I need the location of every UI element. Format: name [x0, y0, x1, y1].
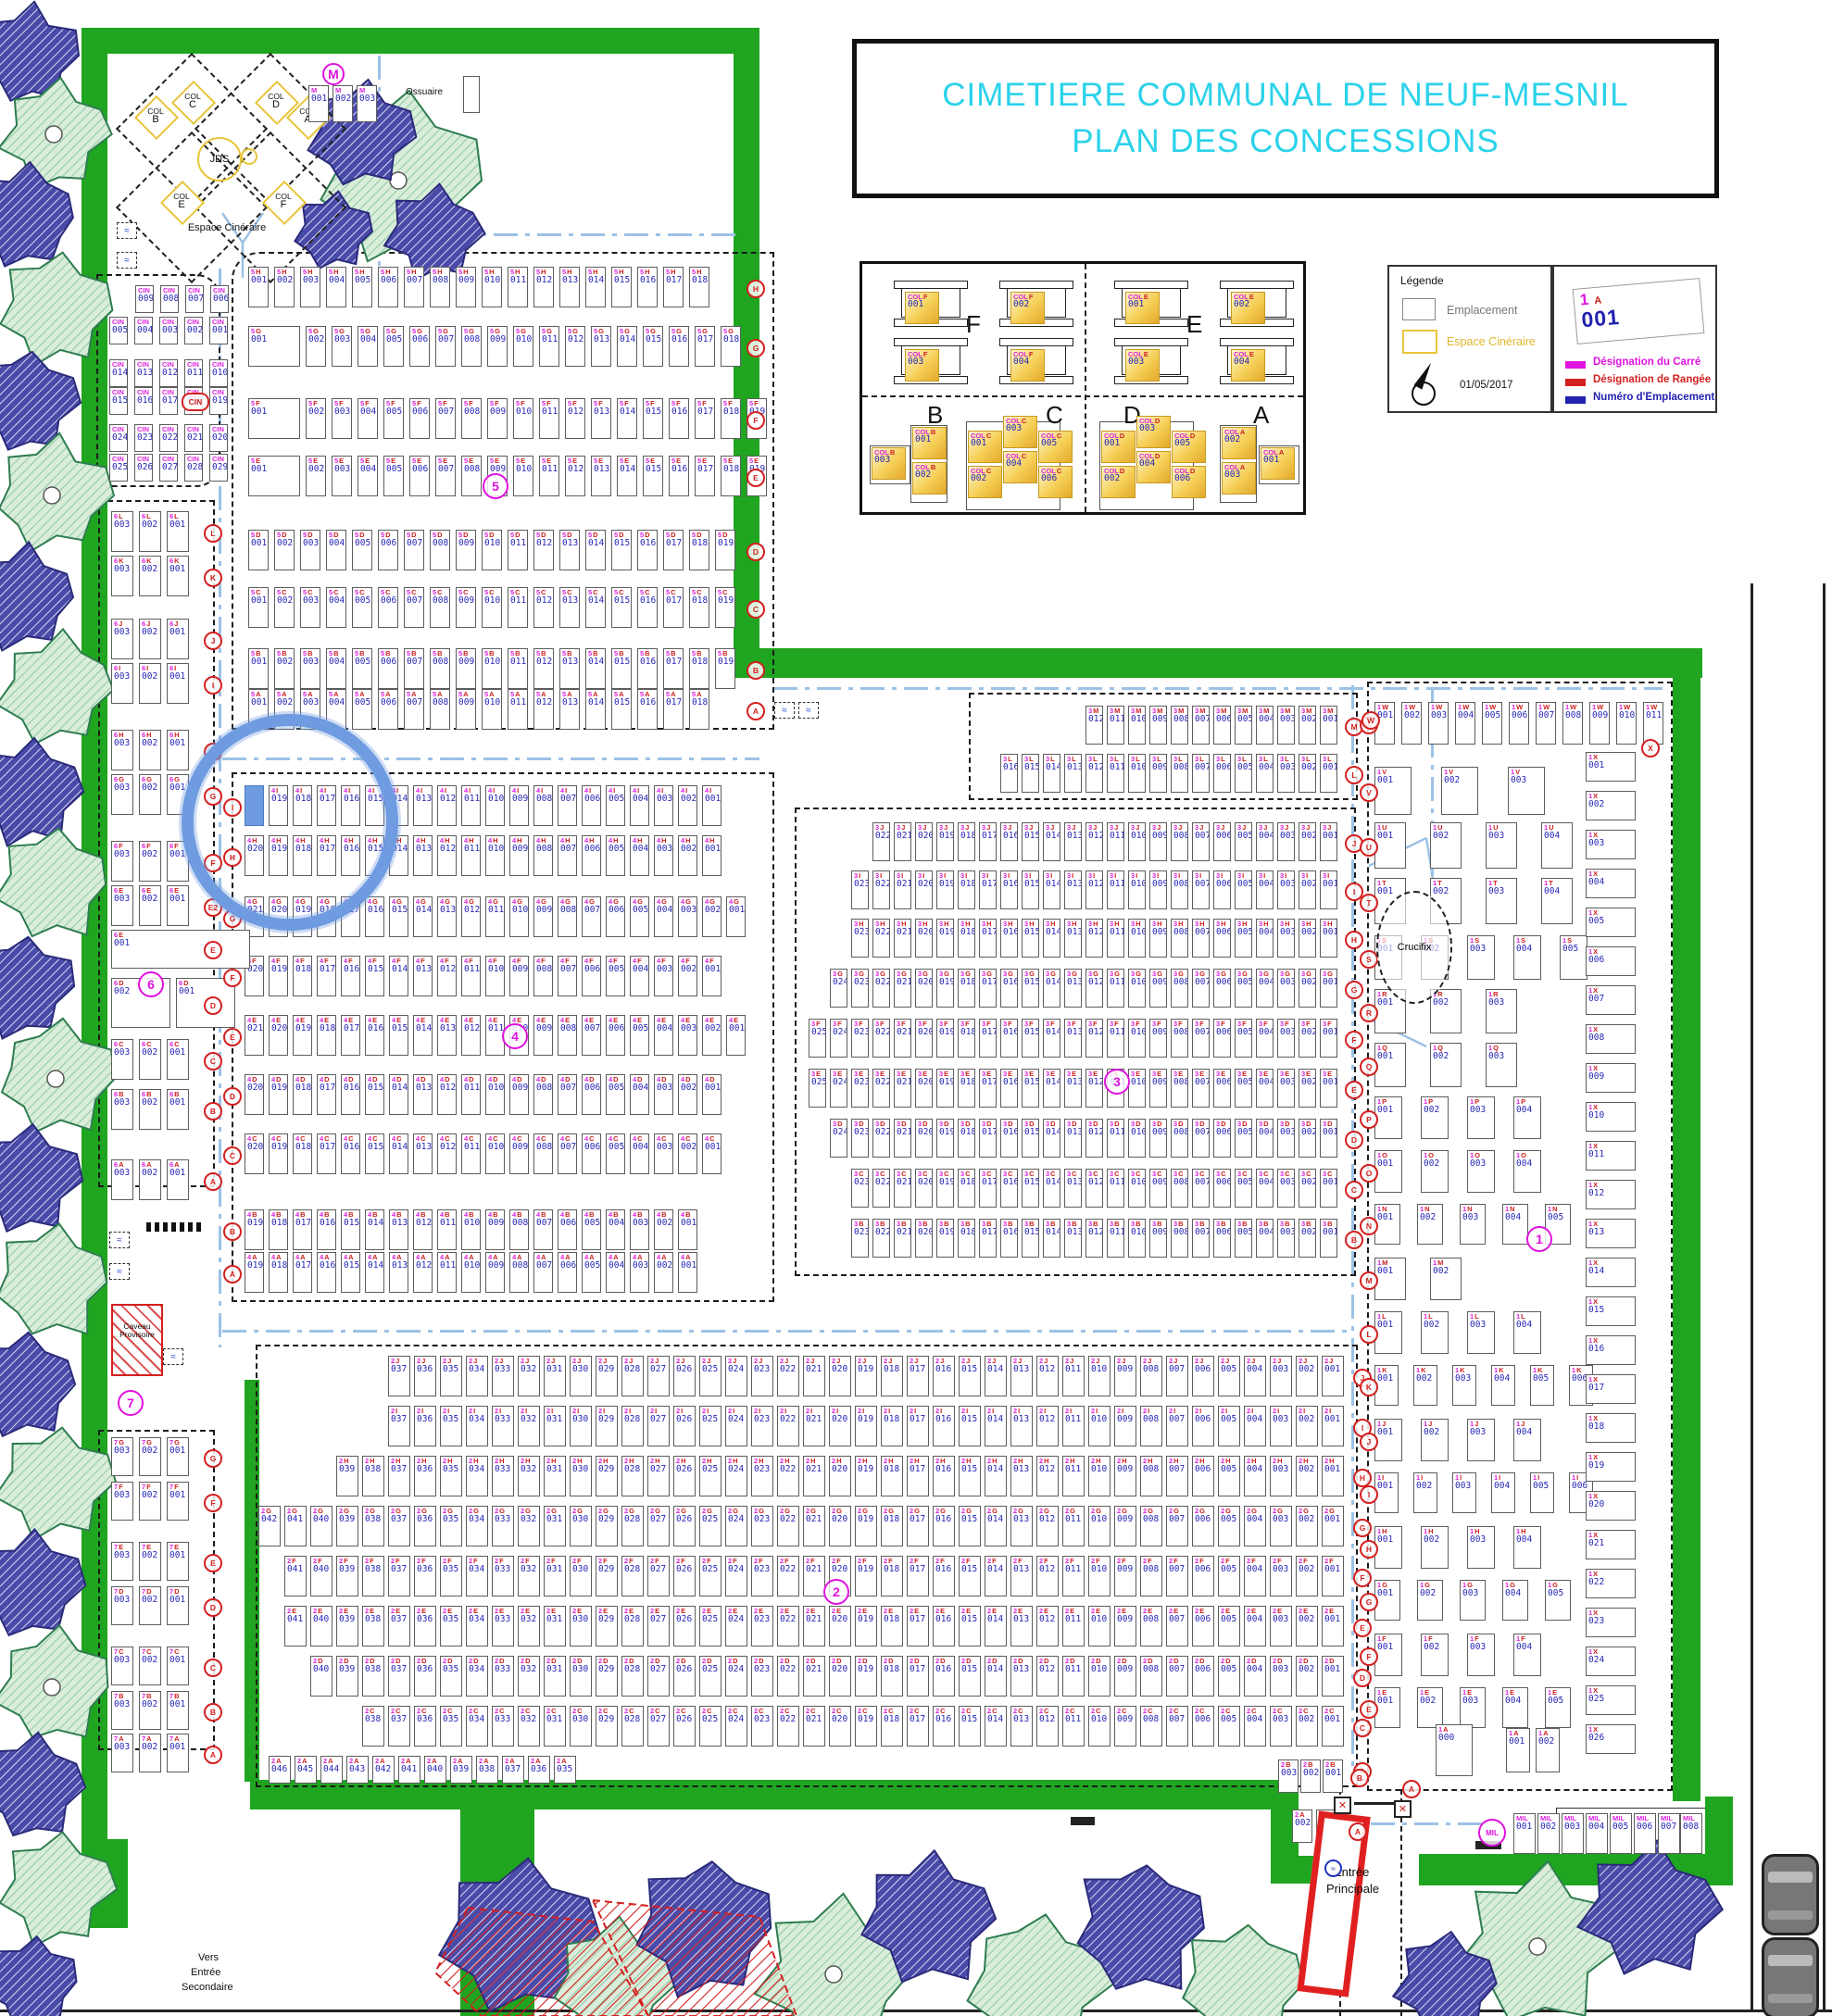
plot[interactable]: 4A004 [606, 1252, 625, 1293]
plot[interactable]: 2J035 [440, 1356, 462, 1396]
plot[interactable]: 3F020 [915, 1019, 933, 1058]
plot[interactable]: 1X025 [1586, 1685, 1636, 1715]
plot[interactable]: 2J030 [570, 1356, 592, 1396]
plot[interactable]: 2D040 [310, 1656, 333, 1697]
plot[interactable]: 5C003 [300, 587, 320, 628]
plot[interactable]: 3F007 [1192, 1019, 1210, 1058]
plot[interactable]: 2G036 [414, 1506, 436, 1546]
plot[interactable]: 3C009 [1149, 1169, 1167, 1208]
plot[interactable]: 3G006 [1213, 969, 1231, 1008]
plot[interactable]: 2J026 [673, 1356, 696, 1396]
plot[interactable]: 1V003 [1508, 767, 1545, 815]
plot[interactable]: 5B010 [482, 648, 502, 689]
plot[interactable]: 1X005 [1586, 908, 1636, 937]
plot[interactable]: 2G026 [673, 1506, 696, 1546]
plot[interactable]: 5C012 [533, 587, 554, 628]
plot[interactable]: 4D017 [317, 1074, 336, 1115]
plot[interactable]: 2H017 [907, 1456, 929, 1496]
plot[interactable]: 3F014 [1043, 1019, 1060, 1058]
plot[interactable]: 2J024 [725, 1356, 747, 1396]
plot[interactable]: 2I030 [570, 1406, 592, 1446]
plot[interactable]: 4D010 [485, 1074, 505, 1115]
plot[interactable]: 3D006 [1213, 1119, 1231, 1158]
plot[interactable]: 4D012 [437, 1074, 457, 1115]
plot[interactable]: 3C004 [1256, 1169, 1274, 1208]
plot[interactable]: 3L001 [1320, 754, 1337, 793]
plot[interactable]: 3E007 [1192, 1069, 1210, 1108]
plot[interactable]: 3M010 [1128, 706, 1146, 745]
plot[interactable]: 6F003 [111, 841, 133, 882]
plot[interactable]: 1X008 [1586, 1024, 1636, 1054]
plot[interactable]: 5F004 [358, 398, 378, 439]
plot[interactable]: 2D012 [1036, 1656, 1059, 1697]
plot[interactable]: 5F011 [539, 398, 559, 439]
plot[interactable]: 6E003 [111, 885, 133, 926]
plot[interactable]: 5D010 [482, 530, 502, 570]
plot[interactable]: 4F001 [702, 956, 722, 996]
plot[interactable]: 3J017 [979, 822, 997, 861]
plot[interactable]: 2D004 [1244, 1656, 1266, 1697]
plot[interactable]: 2H003 [1270, 1456, 1292, 1496]
plot[interactable]: 2J008 [1140, 1356, 1162, 1396]
plot[interactable]: 5F008 [461, 398, 482, 439]
plot[interactable]: 2E013 [1010, 1606, 1033, 1647]
plot[interactable]: 2J015 [959, 1356, 981, 1396]
plot[interactable]: 2D038 [362, 1656, 384, 1697]
plot[interactable]: 4A016 [317, 1252, 336, 1293]
plot[interactable]: 5E008 [461, 456, 482, 496]
plot[interactable]: 2C008 [1140, 1706, 1162, 1747]
plot[interactable]: 3H005 [1235, 919, 1252, 958]
plot[interactable]: 2J013 [1010, 1356, 1033, 1396]
plot[interactable]: 2D015 [959, 1656, 981, 1697]
plot[interactable]: 4C019 [269, 1133, 288, 1174]
plot[interactable]: 2F005 [1218, 1556, 1240, 1597]
plot[interactable]: 5D014 [585, 530, 606, 570]
plot[interactable]: 3I022 [872, 870, 890, 909]
plot[interactable]: 7D003 [111, 1586, 133, 1625]
plot[interactable]: 5C007 [404, 587, 424, 628]
plot[interactable]: 5F013 [591, 398, 611, 439]
plot[interactable]: 3M006 [1213, 706, 1231, 745]
plot[interactable]: 3F019 [936, 1019, 954, 1058]
plot[interactable]: 1X001 [1586, 752, 1636, 782]
plot[interactable]: 5A015 [611, 689, 632, 730]
plot[interactable]: 4G008 [558, 896, 577, 937]
plot[interactable]: 4A013 [389, 1252, 408, 1293]
plot[interactable]: 2H022 [777, 1456, 799, 1496]
plot[interactable]: 4E003 [678, 1015, 697, 1056]
plot[interactable]: 5E014 [617, 456, 637, 496]
plot[interactable]: 4F011 [461, 956, 481, 996]
plot[interactable]: 2C028 [621, 1706, 644, 1747]
plot[interactable]: 2H030 [570, 1456, 592, 1496]
plot[interactable]: CIN025 [109, 454, 128, 482]
plot[interactable]: 4I007 [558, 785, 577, 826]
plot[interactable]: 2G037 [388, 1506, 410, 1546]
plot[interactable]: 3J004 [1256, 822, 1274, 861]
plot[interactable]: 1F001 [1374, 1634, 1402, 1676]
plot[interactable]: 3B017 [979, 1219, 997, 1258]
plot[interactable]: 4E005 [630, 1015, 649, 1056]
plot[interactable]: 6G002 [139, 774, 161, 815]
plot[interactable]: 2C019 [855, 1706, 877, 1747]
plot[interactable]: 4G016 [365, 896, 384, 937]
plot[interactable]: 4F017 [317, 956, 336, 996]
plot[interactable]: 2F018 [881, 1556, 903, 1597]
plot[interactable]: 2D001 [1322, 1656, 1344, 1697]
plot[interactable]: 3F009 [1149, 1019, 1167, 1058]
plot[interactable]: 5G005 [383, 326, 404, 367]
plot[interactable]: 5H005 [352, 267, 372, 307]
plot[interactable]: CIN001 [209, 317, 228, 344]
plot[interactable]: 3F005 [1235, 1019, 1252, 1058]
plot[interactable]: 2C003 [1270, 1706, 1292, 1747]
plot[interactable]: 1E002 [1417, 1687, 1443, 1728]
plot[interactable]: 1F003 [1467, 1634, 1495, 1676]
plot[interactable]: 2H007 [1166, 1456, 1188, 1496]
plot[interactable]: 3C005 [1235, 1169, 1252, 1208]
plot[interactable]: 3H002 [1299, 919, 1316, 958]
plot[interactable]: 4H001 [702, 835, 722, 876]
plot[interactable]: 2F035 [440, 1556, 462, 1597]
plot[interactable]: 1W002 [1401, 702, 1422, 745]
plot[interactable]: 2H008 [1140, 1456, 1162, 1496]
plot[interactable]: 4E001 [726, 1015, 746, 1056]
plot[interactable]: 3F021 [894, 1019, 911, 1058]
plot[interactable]: 4D014 [389, 1074, 408, 1115]
plot[interactable]: 3H012 [1085, 919, 1103, 958]
plot[interactable]: 2G007 [1166, 1506, 1188, 1546]
plot[interactable]: 4G003 [678, 896, 697, 937]
plot[interactable]: 5G016 [669, 326, 689, 367]
plot[interactable]: 4G015 [389, 896, 408, 937]
plot[interactable]: 2H016 [933, 1456, 955, 1496]
plot[interactable]: 2A037 [502, 1756, 524, 1784]
plot[interactable]: 2H039 [336, 1456, 358, 1496]
plot[interactable]: 2J004 [1244, 1356, 1266, 1396]
plot[interactable]: MIL004 [1586, 1813, 1608, 1854]
plot[interactable]: 2A046 [269, 1756, 291, 1784]
plot[interactable]: 2D021 [803, 1656, 825, 1697]
plot[interactable]: MIL008 [1680, 1813, 1702, 1854]
plot[interactable]: 4D001 [702, 1074, 722, 1115]
plot[interactable]: 2E018 [881, 1606, 903, 1647]
plot[interactable]: 3C003 [1277, 1169, 1295, 1208]
plot[interactable]: 2G018 [881, 1506, 903, 1546]
plot[interactable]: 1X002 [1586, 791, 1636, 820]
plot[interactable]: 2C005 [1218, 1706, 1240, 1747]
plot[interactable]: 2H005 [1218, 1456, 1240, 1496]
plot[interactable]: 2G016 [933, 1506, 955, 1546]
plot[interactable]: 5B018 [689, 648, 709, 689]
plot[interactable]: 2J011 [1062, 1356, 1085, 1396]
plot[interactable]: 4F007 [558, 956, 577, 996]
plot[interactable]: 2F031 [544, 1556, 566, 1597]
plot[interactable]: 4D003 [654, 1074, 673, 1115]
plot[interactable]: 2H032 [518, 1456, 540, 1496]
plot[interactable]: 5H009 [456, 267, 476, 307]
plot[interactable]: 3H013 [1064, 919, 1082, 958]
plot[interactable]: 4D007 [558, 1074, 577, 1115]
plot[interactable]: 3J007 [1192, 822, 1210, 861]
plot[interactable]: 3B014 [1043, 1219, 1060, 1258]
plot[interactable]: 4I008 [533, 785, 553, 826]
plot[interactable]: 4C010 [485, 1133, 505, 1174]
plot[interactable]: 1X013 [1586, 1219, 1636, 1248]
plot[interactable]: 3G019 [936, 969, 954, 1008]
plot[interactable]: 1X024 [1586, 1647, 1636, 1676]
plot[interactable]: 4I005 [606, 785, 625, 826]
plot[interactable]: 2H020 [829, 1456, 851, 1496]
plot[interactable]: 3J020 [915, 822, 933, 861]
plot[interactable]: 2I027 [647, 1406, 670, 1446]
plot[interactable]: 2A042 [372, 1756, 395, 1784]
plot[interactable]: 3C022 [872, 1169, 890, 1208]
plot[interactable]: 2J019 [855, 1356, 877, 1396]
plot[interactable]: 4F006 [582, 956, 601, 996]
plot[interactable]: 4G002 [702, 896, 722, 937]
plot[interactable]: 1X014 [1586, 1258, 1636, 1287]
plot[interactable]: 5F003 [332, 398, 352, 439]
plot[interactable]: 2J037 [388, 1356, 410, 1396]
plot[interactable]: 4E009 [533, 1015, 553, 1056]
plot[interactable]: 4H008 [533, 835, 553, 876]
plot[interactable]: 2H037 [388, 1456, 410, 1496]
plot[interactable]: 2I016 [933, 1406, 955, 1446]
plot[interactable]: 2H006 [1192, 1456, 1214, 1496]
plot[interactable]: 3J008 [1171, 822, 1188, 861]
plot[interactable]: 4G001 [726, 896, 746, 937]
plot[interactable]: 2G001 [1322, 1506, 1344, 1546]
plot[interactable]: 1X009 [1586, 1063, 1636, 1093]
plot[interactable]: 5H007 [404, 267, 424, 307]
plot[interactable]: 6C002 [139, 1039, 161, 1080]
plot[interactable]: 3J003 [1277, 822, 1295, 861]
plot[interactable]: 5B015 [611, 648, 632, 689]
plot[interactable]: 5G017 [695, 326, 715, 367]
plot[interactable]: 2F032 [518, 1556, 540, 1597]
plot[interactable]: 5C011 [508, 587, 528, 628]
plot[interactable]: 2D037 [388, 1656, 410, 1697]
plot[interactable]: 2C018 [881, 1706, 903, 1747]
plot[interactable]: 2D011 [1062, 1656, 1085, 1697]
plot[interactable]: 5C014 [585, 587, 606, 628]
plot[interactable]: 3I015 [1022, 870, 1039, 909]
plot[interactable]: 3G021 [894, 969, 911, 1008]
plot[interactable]: 1O004 [1513, 1150, 1541, 1193]
plot[interactable]: 5G018 [721, 326, 741, 367]
plot[interactable]: 7C003 [111, 1647, 133, 1685]
plot[interactable]: 3M005 [1235, 706, 1252, 745]
plot[interactable]: 6J003 [111, 619, 133, 659]
plot[interactable]: 1J003 [1467, 1419, 1495, 1461]
plot[interactable]: 1X026 [1586, 1724, 1636, 1754]
plot[interactable]: 5G011 [539, 326, 559, 367]
plot[interactable]: 3F003 [1277, 1019, 1295, 1058]
plot[interactable]: 4E017 [341, 1015, 360, 1056]
plot[interactable]: 1U003 [1486, 822, 1517, 869]
plot[interactable]: 2I008 [1140, 1406, 1162, 1446]
plot[interactable]: 5F007 [435, 398, 456, 439]
plot[interactable]: 1W004 [1455, 702, 1475, 745]
plot[interactable]: 3J002 [1299, 822, 1316, 861]
plot[interactable]: 1X016 [1586, 1335, 1636, 1365]
plot[interactable]: 6I001 [167, 663, 189, 704]
plot[interactable]: 2A040 [424, 1756, 446, 1784]
plot[interactable]: 1K005 [1530, 1365, 1554, 1406]
plot[interactable]: 4B018 [269, 1209, 288, 1250]
plot[interactable]: 1G002 [1417, 1580, 1443, 1621]
plot[interactable]: 3M008 [1171, 706, 1188, 745]
plot[interactable]: 5D015 [611, 530, 632, 570]
plot[interactable]: 2H028 [621, 1456, 644, 1496]
plot[interactable]: CIN011 [184, 359, 203, 387]
plot[interactable]: 2E030 [570, 1606, 592, 1647]
plot[interactable]: CIN015 [109, 387, 128, 415]
plot[interactable]: 2J003 [1270, 1356, 1292, 1396]
plot[interactable]: CIN006 [210, 285, 229, 313]
plot[interactable]: 5D009 [456, 530, 476, 570]
plot[interactable]: 2I006 [1192, 1406, 1214, 1446]
plot[interactable]: 3D019 [936, 1119, 954, 1158]
plot[interactable]: 4B006 [558, 1209, 577, 1250]
plot[interactable]: 1L003 [1467, 1311, 1495, 1354]
plot[interactable]: 1X006 [1586, 946, 1636, 976]
plot[interactable]: 2G015 [959, 1506, 981, 1546]
plot[interactable]: 4A007 [533, 1252, 553, 1293]
plot[interactable]: 6H003 [111, 730, 133, 770]
plot[interactable]: 5F012 [565, 398, 585, 439]
plot[interactable]: 2F034 [466, 1556, 488, 1597]
plot[interactable]: 5D002 [274, 530, 295, 570]
plot[interactable]: 3F015 [1022, 1019, 1039, 1058]
plot[interactable]: 1X007 [1586, 985, 1636, 1015]
plot[interactable]: 2F013 [1010, 1556, 1033, 1597]
plot[interactable]: 2D018 [881, 1656, 903, 1697]
plot[interactable]: 1X023 [1586, 1608, 1636, 1637]
plot[interactable]: 2I029 [596, 1406, 618, 1446]
plot[interactable]: 4I002 [678, 785, 697, 826]
plot[interactable]: 2D026 [673, 1656, 696, 1697]
plot[interactable]: 1P004 [1513, 1096, 1541, 1139]
plot[interactable]: 2I011 [1062, 1406, 1085, 1446]
plot[interactable]: 4E012 [461, 1015, 481, 1056]
plot[interactable]: 3G014 [1043, 969, 1060, 1008]
plot[interactable]: 3H011 [1107, 919, 1124, 958]
plot[interactable]: 2G017 [907, 1506, 929, 1546]
plot[interactable]: 4C011 [461, 1133, 481, 1174]
plot[interactable]: 2E026 [673, 1606, 696, 1647]
plot[interactable]: 3F001 [1320, 1019, 1337, 1058]
plot[interactable]: 3F023 [851, 1019, 869, 1058]
plot[interactable]: 3H006 [1213, 919, 1231, 958]
plot[interactable]: 5C004 [326, 587, 346, 628]
plot[interactable]: 5E015 [643, 456, 663, 496]
plot[interactable]: 2G010 [1088, 1506, 1110, 1546]
plot[interactable]: 2F002 [1296, 1556, 1318, 1597]
plot[interactable]: 1G003 [1460, 1580, 1486, 1621]
plot[interactable]: 3D002 [1299, 1119, 1316, 1158]
plot[interactable]: 2I001 [1322, 1406, 1344, 1446]
plot[interactable]: 2C017 [907, 1706, 929, 1747]
plot[interactable]: 2F040 [310, 1556, 333, 1597]
plot[interactable]: 3L006 [1213, 754, 1231, 793]
plot[interactable]: 1X020 [1586, 1491, 1636, 1521]
plot[interactable]: 2J023 [751, 1356, 773, 1396]
plot[interactable]: CIN013 [134, 359, 153, 387]
plot[interactable]: 7B002 [139, 1691, 161, 1730]
plot[interactable]: 7G003 [111, 1437, 133, 1476]
plot[interactable]: 2F023 [751, 1556, 773, 1597]
plot[interactable]: 3G001 [1320, 969, 1337, 1008]
plot[interactable]: 5H008 [430, 267, 450, 307]
plot[interactable]: 2C030 [570, 1706, 592, 1747]
plot[interactable]: 3D004 [1256, 1119, 1274, 1158]
plot[interactable]: 2J036 [414, 1356, 436, 1396]
plot[interactable]: 3C014 [1043, 1169, 1060, 1208]
plot[interactable]: 4A012 [413, 1252, 433, 1293]
plot[interactable]: 2H001 [1322, 1456, 1344, 1496]
plot[interactable]: 2F027 [647, 1556, 670, 1597]
plot[interactable]: 2E017 [907, 1606, 929, 1647]
plot[interactable]: 1X017 [1586, 1374, 1636, 1404]
plot[interactable]: 3I009 [1149, 870, 1167, 909]
plot[interactable]: 2G024 [725, 1506, 747, 1546]
plot[interactable]: 2H015 [959, 1456, 981, 1496]
plot[interactable]: 4E015 [389, 1015, 408, 1056]
plot[interactable]: 3G007 [1192, 969, 1210, 1008]
plot[interactable]: 4D008 [533, 1074, 553, 1115]
plot[interactable]: CIN014 [109, 359, 128, 387]
plot[interactable]: 3I016 [1000, 870, 1018, 909]
plot[interactable]: 2C038 [362, 1706, 384, 1747]
plot[interactable]: 3H003 [1277, 919, 1295, 958]
plot[interactable]: 6G003 [111, 774, 133, 815]
plot[interactable]: 5F017 [695, 398, 715, 439]
plot[interactable]: 2C025 [699, 1706, 722, 1747]
plot[interactable]: 3G010 [1128, 969, 1146, 1008]
plot[interactable]: 6E001 [111, 930, 250, 969]
plot[interactable]: 5H002 [274, 267, 295, 307]
plot[interactable]: 3B004 [1256, 1219, 1274, 1258]
plot[interactable]: 2I033 [492, 1406, 514, 1446]
plot[interactable]: 1S003 [1467, 935, 1495, 980]
plot[interactable]: 5D004 [326, 530, 346, 570]
plot[interactable]: 2B002 [1300, 1759, 1321, 1793]
plot[interactable]: 3E013 [1064, 1069, 1082, 1108]
plot[interactable]: 3J014 [1043, 822, 1060, 861]
plot[interactable]: 5E017 [695, 456, 715, 496]
plot[interactable]: 4E016 [365, 1015, 384, 1056]
plot[interactable]: 3C021 [894, 1169, 911, 1208]
plot[interactable]: 2I015 [959, 1406, 981, 1446]
plot[interactable]: 2F009 [1114, 1556, 1136, 1597]
plot[interactable]: 7F001 [167, 1482, 189, 1521]
plot[interactable]: 2E008 [1140, 1606, 1162, 1647]
plot[interactable]: 3L003 [1277, 754, 1295, 793]
plot[interactable]: 2I013 [1010, 1406, 1033, 1446]
plot[interactable]: 3J006 [1213, 822, 1231, 861]
plot[interactable]: 5D012 [533, 530, 554, 570]
plot[interactable]: 1I003 [1452, 1472, 1476, 1513]
plot[interactable]: 4G013 [437, 896, 457, 937]
plot[interactable]: 5H014 [585, 267, 606, 307]
plot[interactable]: 1Q003 [1486, 1043, 1517, 1087]
plot[interactable]: 4E007 [582, 1015, 601, 1056]
plot[interactable]: 2I036 [414, 1406, 436, 1446]
plot[interactable]: 2I010 [1088, 1406, 1110, 1446]
